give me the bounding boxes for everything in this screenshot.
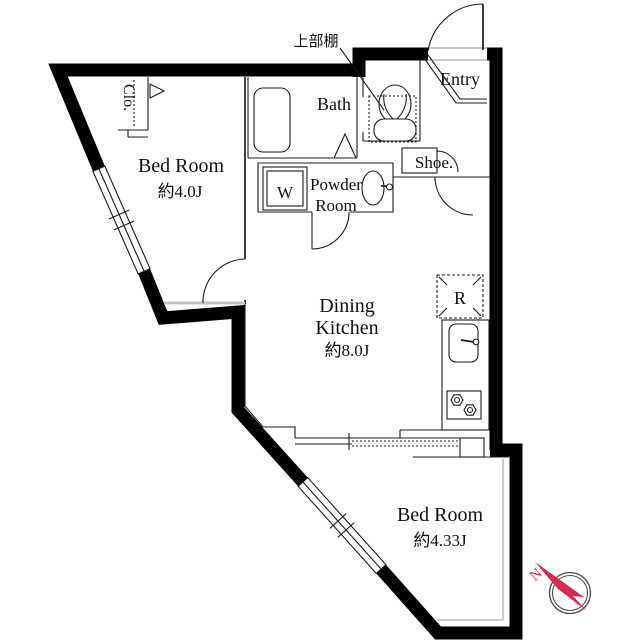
dining-kitchen-label-line1: Dining: [319, 295, 375, 317]
kitchen-faucet-knob: [473, 339, 479, 345]
bathtub: [254, 88, 290, 152]
entry-label: Entry: [440, 69, 480, 89]
powder-faucet-knob: [387, 184, 393, 190]
bath-label: Bath: [317, 94, 351, 114]
toilet-tank: [374, 119, 416, 141]
washing-machine-label: W: [277, 183, 294, 202]
bedroom1-label: Bed Room: [138, 155, 225, 177]
fridge-label: R: [454, 288, 466, 308]
bedroom1-area: 約4.0J: [158, 182, 203, 201]
dining-kitchen-area: 約8.0J: [325, 341, 370, 360]
upper-shelf-label: 上部棚: [293, 33, 338, 50]
closet-label: Clo.: [120, 84, 137, 111]
shoe-label: Shoe.: [415, 153, 453, 172]
dining-kitchen-label-line2: Kitchen: [315, 317, 378, 339]
floor-plan-page: N Bed Room 約4.0J Bath Powder Room W Entr…: [0, 0, 640, 640]
floor-plan-svg: N Bed Room 約4.0J Bath Powder Room W Entr…: [0, 0, 640, 640]
toilet-bowl: [379, 85, 411, 123]
powder-room-label-line1: Powder: [310, 175, 362, 194]
bedroom2-label: Bed Room: [397, 504, 484, 526]
powder-sink: [362, 171, 384, 205]
bedroom2-area: 約4.33J: [413, 531, 467, 550]
powder-room-label-line2: Room: [315, 196, 357, 215]
